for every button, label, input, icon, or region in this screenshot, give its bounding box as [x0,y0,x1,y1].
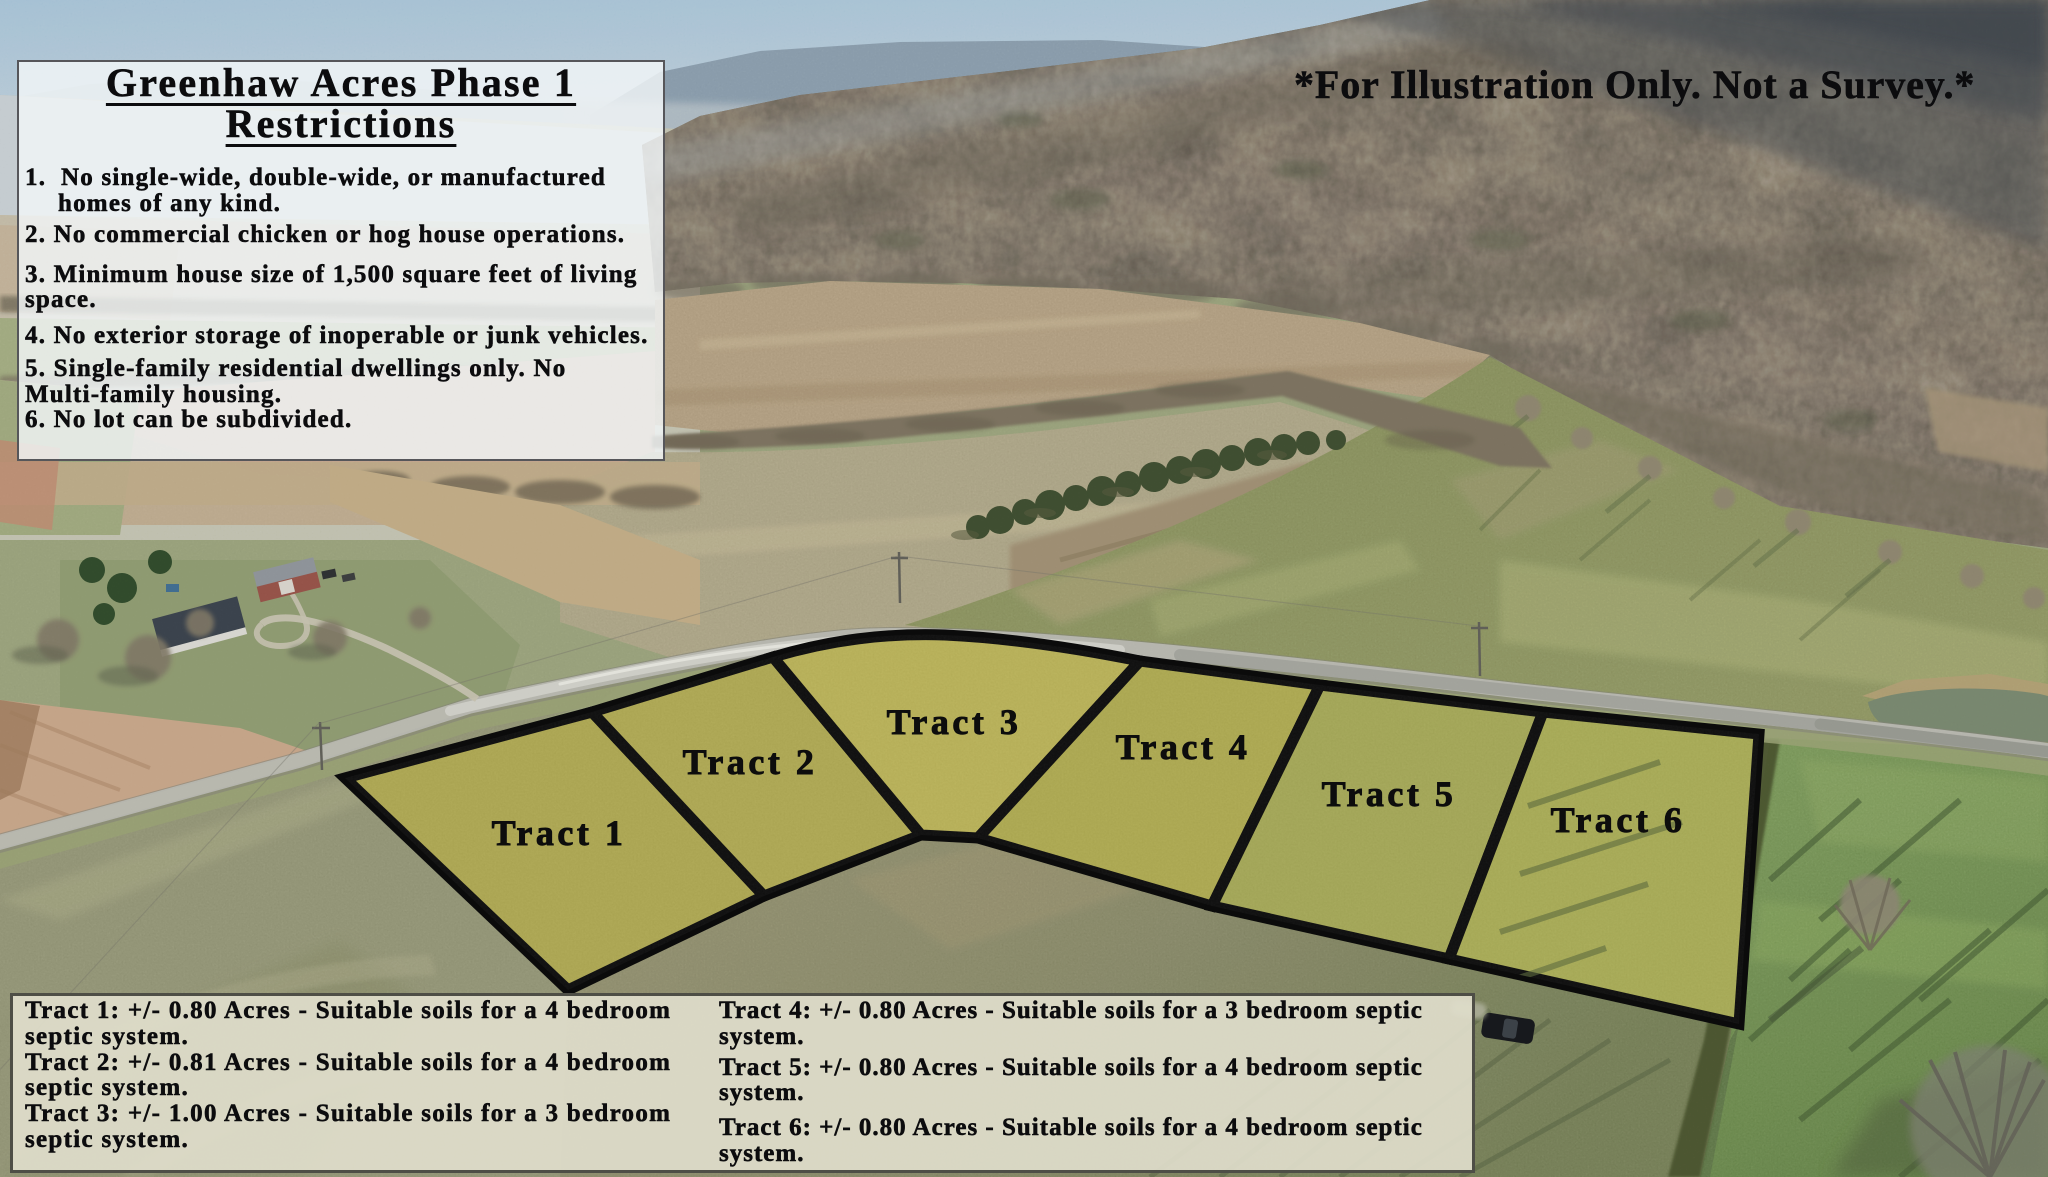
svg-text:Tract 1: Tract 1 [492,813,627,853]
svg-text:Tract 3: Tract 3 [887,702,1022,742]
svg-text:Tract 5: Tract 5 [1322,774,1457,814]
svg-text:Tract 6: Tract 6 [1551,800,1686,840]
svg-text:Tract 2: Tract 2 [683,742,818,782]
svg-text:Tract 4: Tract 4 [1116,727,1251,767]
